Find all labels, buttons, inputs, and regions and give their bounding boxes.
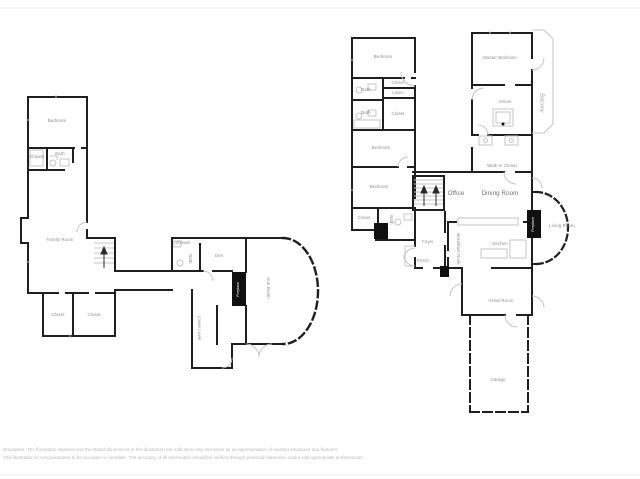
room-label-kitchen: Kitchen	[492, 242, 507, 246]
disclaimer-line-1: Disclaimer: The floorplans depicted and …	[3, 446, 364, 454]
fireplace-label: Fireplace	[237, 282, 241, 297]
room-label-bedroom-lower: Bedroom	[370, 185, 389, 189]
chimney-box-foyer	[440, 266, 449, 277]
sun-room-window-wall	[283, 238, 318, 344]
room-label-bath-middle: Bath	[188, 254, 192, 263]
room-label-bedroom-left: Bedroom	[48, 119, 67, 123]
balcony-outline	[532, 30, 553, 133]
room-label-bath-2: Bath	[361, 111, 370, 115]
left-plan-walls	[21, 97, 318, 368]
room-label-closet-1: Closet	[391, 81, 404, 85]
room-label-lower-level: Lower Level	[197, 316, 201, 341]
room-label-dining-room: Dining Room	[482, 191, 519, 197]
room-label-walk-in-closet: Walk-In Closet	[487, 164, 517, 168]
chimney-box-bedroom-wing	[374, 223, 388, 239]
room-label-bath-1: Bath	[361, 88, 370, 92]
room-label-sun-room: Sun Room	[266, 277, 270, 299]
room-label-garage: Garage	[490, 378, 505, 382]
room-label-bedroom-middle: Bedroom	[372, 146, 391, 150]
room-label-office: Office	[448, 191, 465, 197]
fireplace-living-room: Fireplace	[527, 210, 541, 238]
room-label-closet-2: Closet	[391, 112, 404, 116]
garage-walls	[470, 315, 528, 412]
room-label-balcony: Balcony	[538, 93, 543, 112]
left-plan-details	[26, 95, 272, 368]
room-label-family-room: Family Room	[47, 238, 74, 242]
room-label-living-room: Living Room	[549, 224, 575, 228]
page-rule-lines	[0, 8, 640, 475]
tub-drain-dot	[502, 123, 505, 126]
disclaimer-text: Disclaimer: The floorplans depicted and …	[3, 446, 364, 463]
room-label-bath-upper-left: Bath	[55, 152, 64, 156]
fireplace-label: Fireplace	[532, 217, 536, 232]
room-label-bedroom-top: Bedroom	[374, 55, 393, 59]
right-plan-details	[350, 30, 553, 327]
room-label-closet-3: Closet	[357, 216, 370, 220]
room-label-master-bedroom: Master Bedroom	[483, 56, 517, 60]
room-label-shower-left: Shower	[29, 155, 45, 159]
room-label-foyer: Foyer	[422, 240, 434, 244]
room-label-linen: Linen	[392, 91, 403, 95]
fireplace-sun-room: Fireplace	[232, 272, 246, 306]
room-label-den: Den	[215, 254, 223, 258]
floor-plan-page: Fireplace Fireplace Bedroom Shower Bath …	[0, 0, 640, 479]
room-label-bath-3: Bath	[389, 215, 393, 224]
floor-plan-linework	[0, 0, 640, 479]
room-label-closet-right: Closet	[87, 313, 100, 317]
room-label-closet-left: Closet	[51, 313, 64, 317]
room-label-shower-middle: Shower	[175, 241, 191, 245]
room-label-breakfast-nook: Breakfast Nook	[456, 233, 460, 264]
stair-arrows	[101, 186, 439, 268]
room-label-atrium: Atrium	[498, 100, 511, 104]
room-label-porch: Porch	[417, 259, 429, 263]
room-label-great-room: Great Room	[489, 299, 514, 303]
disclaimer-line-2: This illustration is not guaranteed to b…	[3, 454, 364, 462]
